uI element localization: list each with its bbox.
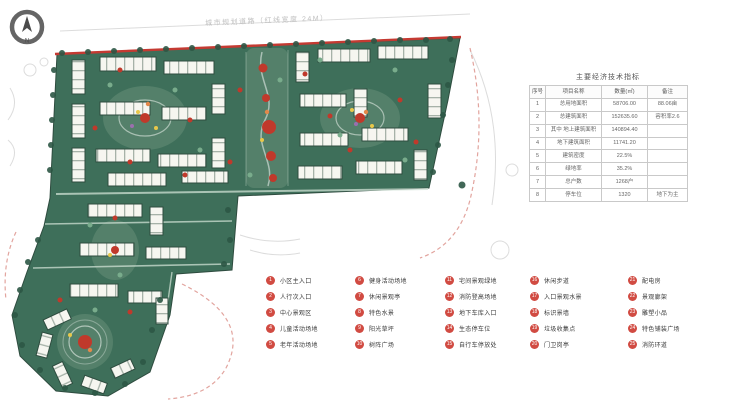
legend-label: 入口景观水景 (544, 292, 582, 301)
legend-marker-icon: 11 (445, 276, 454, 285)
legend-item: 2 人行次入口 (266, 292, 354, 302)
legend-label: 特色水景 (369, 308, 394, 317)
legend-label: 雕塑小品 (642, 308, 667, 317)
table-row: 1总用地面积 58706.0088.06亩 (530, 98, 688, 111)
table-row: 5建筑密度 22.5% (530, 150, 688, 163)
legend-label: 健身活动场地 (369, 276, 407, 285)
legend-item: 24 特色铺装广场 (628, 324, 716, 334)
legend-item: 1 小区主入口 (266, 276, 354, 286)
legend-label: 中心景观区 (280, 308, 312, 317)
legend-label: 标识景墙 (544, 308, 569, 317)
legend-item: 5 老年活动场地 (266, 340, 354, 350)
legend-item: 13 地下车库入口 (445, 308, 533, 318)
legend-marker-icon: 18 (530, 308, 539, 317)
legend-label: 配电房 (642, 276, 661, 285)
table-header-row: 序号 项目名称 数量(㎡) 备注 (530, 86, 688, 99)
legend-marker-icon: 19 (530, 324, 539, 333)
legend-item: 3 中心景观区 (266, 308, 354, 318)
legend-label: 门卫岗亭 (544, 340, 569, 349)
legend-marker-icon: 15 (445, 340, 454, 349)
legend-column-1: 1 小区主入口 2 人行次入口 3 中心景观区 4 儿童活动场地 5 老年活动场… (266, 276, 354, 356)
table-row: 2总建筑面积 152635.60容积率2.6 (530, 111, 688, 124)
legend-item: 7 休闲景观亭 (355, 292, 443, 302)
legend-item: 6 健身活动场地 (355, 276, 443, 286)
legend-marker-icon: 17 (530, 292, 539, 301)
legend-label: 垃圾收集点 (544, 324, 576, 333)
legend-label: 特色铺装广场 (642, 324, 680, 333)
col-header: 数量(㎡) (602, 86, 648, 99)
legend-marker-icon: 2 (266, 292, 275, 301)
legend-column-5: 21 配电房 22 景观廊架 23 雕塑小品 24 特色铺装广场 25 消防环道 (628, 276, 716, 356)
legend-item: 22 景观廊架 (628, 292, 716, 302)
legend-label: 树阵广场 (369, 340, 394, 349)
legend-item: 19 垃圾收集点 (530, 324, 618, 334)
col-header: 项目名称 (546, 86, 602, 99)
legend-label: 休闲景观亭 (369, 292, 401, 301)
legend-marker-icon: 7 (355, 292, 364, 301)
north-arrow-compass: N (8, 8, 46, 46)
legend-item: 21 配电房 (628, 276, 716, 286)
legend-label: 消防环道 (642, 340, 667, 349)
legend-label: 儿童活动场地 (280, 324, 318, 333)
legend-marker-icon: 22 (628, 292, 637, 301)
legend-item: 23 雕塑小品 (628, 308, 716, 318)
table-row: 4地下建筑面积 11741.20 (530, 137, 688, 150)
legend-label: 自行车停放处 (459, 340, 497, 349)
legend-label: 休闲步道 (544, 276, 569, 285)
legend-label: 消防登高场地 (459, 292, 497, 301)
legend-marker-icon: 1 (266, 276, 275, 285)
legend-marker-icon: 23 (628, 308, 637, 317)
legend-label: 宅间景观绿地 (459, 276, 497, 285)
legend-item: 11 宅间景观绿地 (445, 276, 533, 286)
legend-label: 老年活动场地 (280, 340, 318, 349)
table-title: 主要经济技术指标 (529, 72, 687, 82)
legend-marker-icon: 16 (530, 276, 539, 285)
legend-label: 阳光草坪 (369, 324, 394, 333)
legend-marker-icon: 5 (266, 340, 275, 349)
table-row: 7总户数 1268户 (530, 176, 688, 189)
legend-marker-icon: 8 (355, 308, 364, 317)
legend-item: 10 树阵广场 (355, 340, 443, 350)
legend-item: 20 门卫岗亭 (530, 340, 618, 350)
legend-column-4: 16 休闲步道 17 入口景观水景 18 标识景墙 19 垃圾收集点 20 门卫… (530, 276, 618, 356)
legend-label: 生态停车位 (459, 324, 491, 333)
legend-item: 25 消防环道 (628, 340, 716, 350)
legend-label: 小区主入口 (280, 276, 312, 285)
col-header: 序号 (530, 86, 546, 99)
legend-item: 15 自行车停放处 (445, 340, 533, 350)
legend-marker-icon: 4 (266, 324, 275, 333)
legend-item: 16 休闲步道 (530, 276, 618, 286)
legend-marker-icon: 20 (530, 340, 539, 349)
legend-label: 人行次入口 (280, 292, 312, 301)
legend-marker-icon: 14 (445, 324, 454, 333)
legend-marker-icon: 25 (628, 340, 637, 349)
table-row: 8停车位 1320地下为主 (530, 189, 688, 202)
legend-item: 17 入口景观水景 (530, 292, 618, 302)
legend-marker-icon: 21 (628, 276, 637, 285)
legend-item: 4 儿童活动场地 (266, 324, 354, 334)
compass-n-label: N (25, 39, 29, 45)
legend-item: 8 特色水景 (355, 308, 443, 318)
col-header: 备注 (648, 86, 688, 99)
legend-marker-icon: 10 (355, 340, 364, 349)
legend-column-2: 6 健身活动场地 7 休闲景观亭 8 特色水景 9 阳光草坪 10 树阵广场 (355, 276, 443, 356)
legend-marker-icon: 3 (266, 308, 275, 317)
legend-marker-icon: 24 (628, 324, 637, 333)
legend-marker-icon: 6 (355, 276, 364, 285)
legend-item: 9 阳光草坪 (355, 324, 443, 334)
table-row: 3其中 地上建筑面积 140894.40 (530, 124, 688, 137)
legend-label: 地下车库入口 (459, 308, 497, 317)
legend-item: 12 消防登高场地 (445, 292, 533, 302)
legend-marker-icon: 13 (445, 308, 454, 317)
legend-marker-icon: 9 (355, 324, 364, 333)
site-plan-sheet: N 城市规划道路（红线宽度 24M） 主要经济技术指标 序号 项目名称 数量(㎡… (0, 0, 750, 403)
legend-marker-icon: 12 (445, 292, 454, 301)
legend-item: 14 生态停车位 (445, 324, 533, 334)
legend-label: 景观廊架 (642, 292, 667, 301)
legend-column-3: 11 宅间景观绿地 12 消防登高场地 13 地下车库入口 14 生态停车位 1… (445, 276, 533, 356)
economic-indicator-panel: 主要经济技术指标 序号 项目名称 数量(㎡) 备注 1总用地面积 58706.0… (529, 72, 687, 202)
legend-item: 18 标识景墙 (530, 308, 618, 318)
economic-indicator-table: 序号 项目名称 数量(㎡) 备注 1总用地面积 58706.0088.06亩 2… (529, 85, 688, 202)
table-row: 6绿地率 35.2% (530, 163, 688, 176)
